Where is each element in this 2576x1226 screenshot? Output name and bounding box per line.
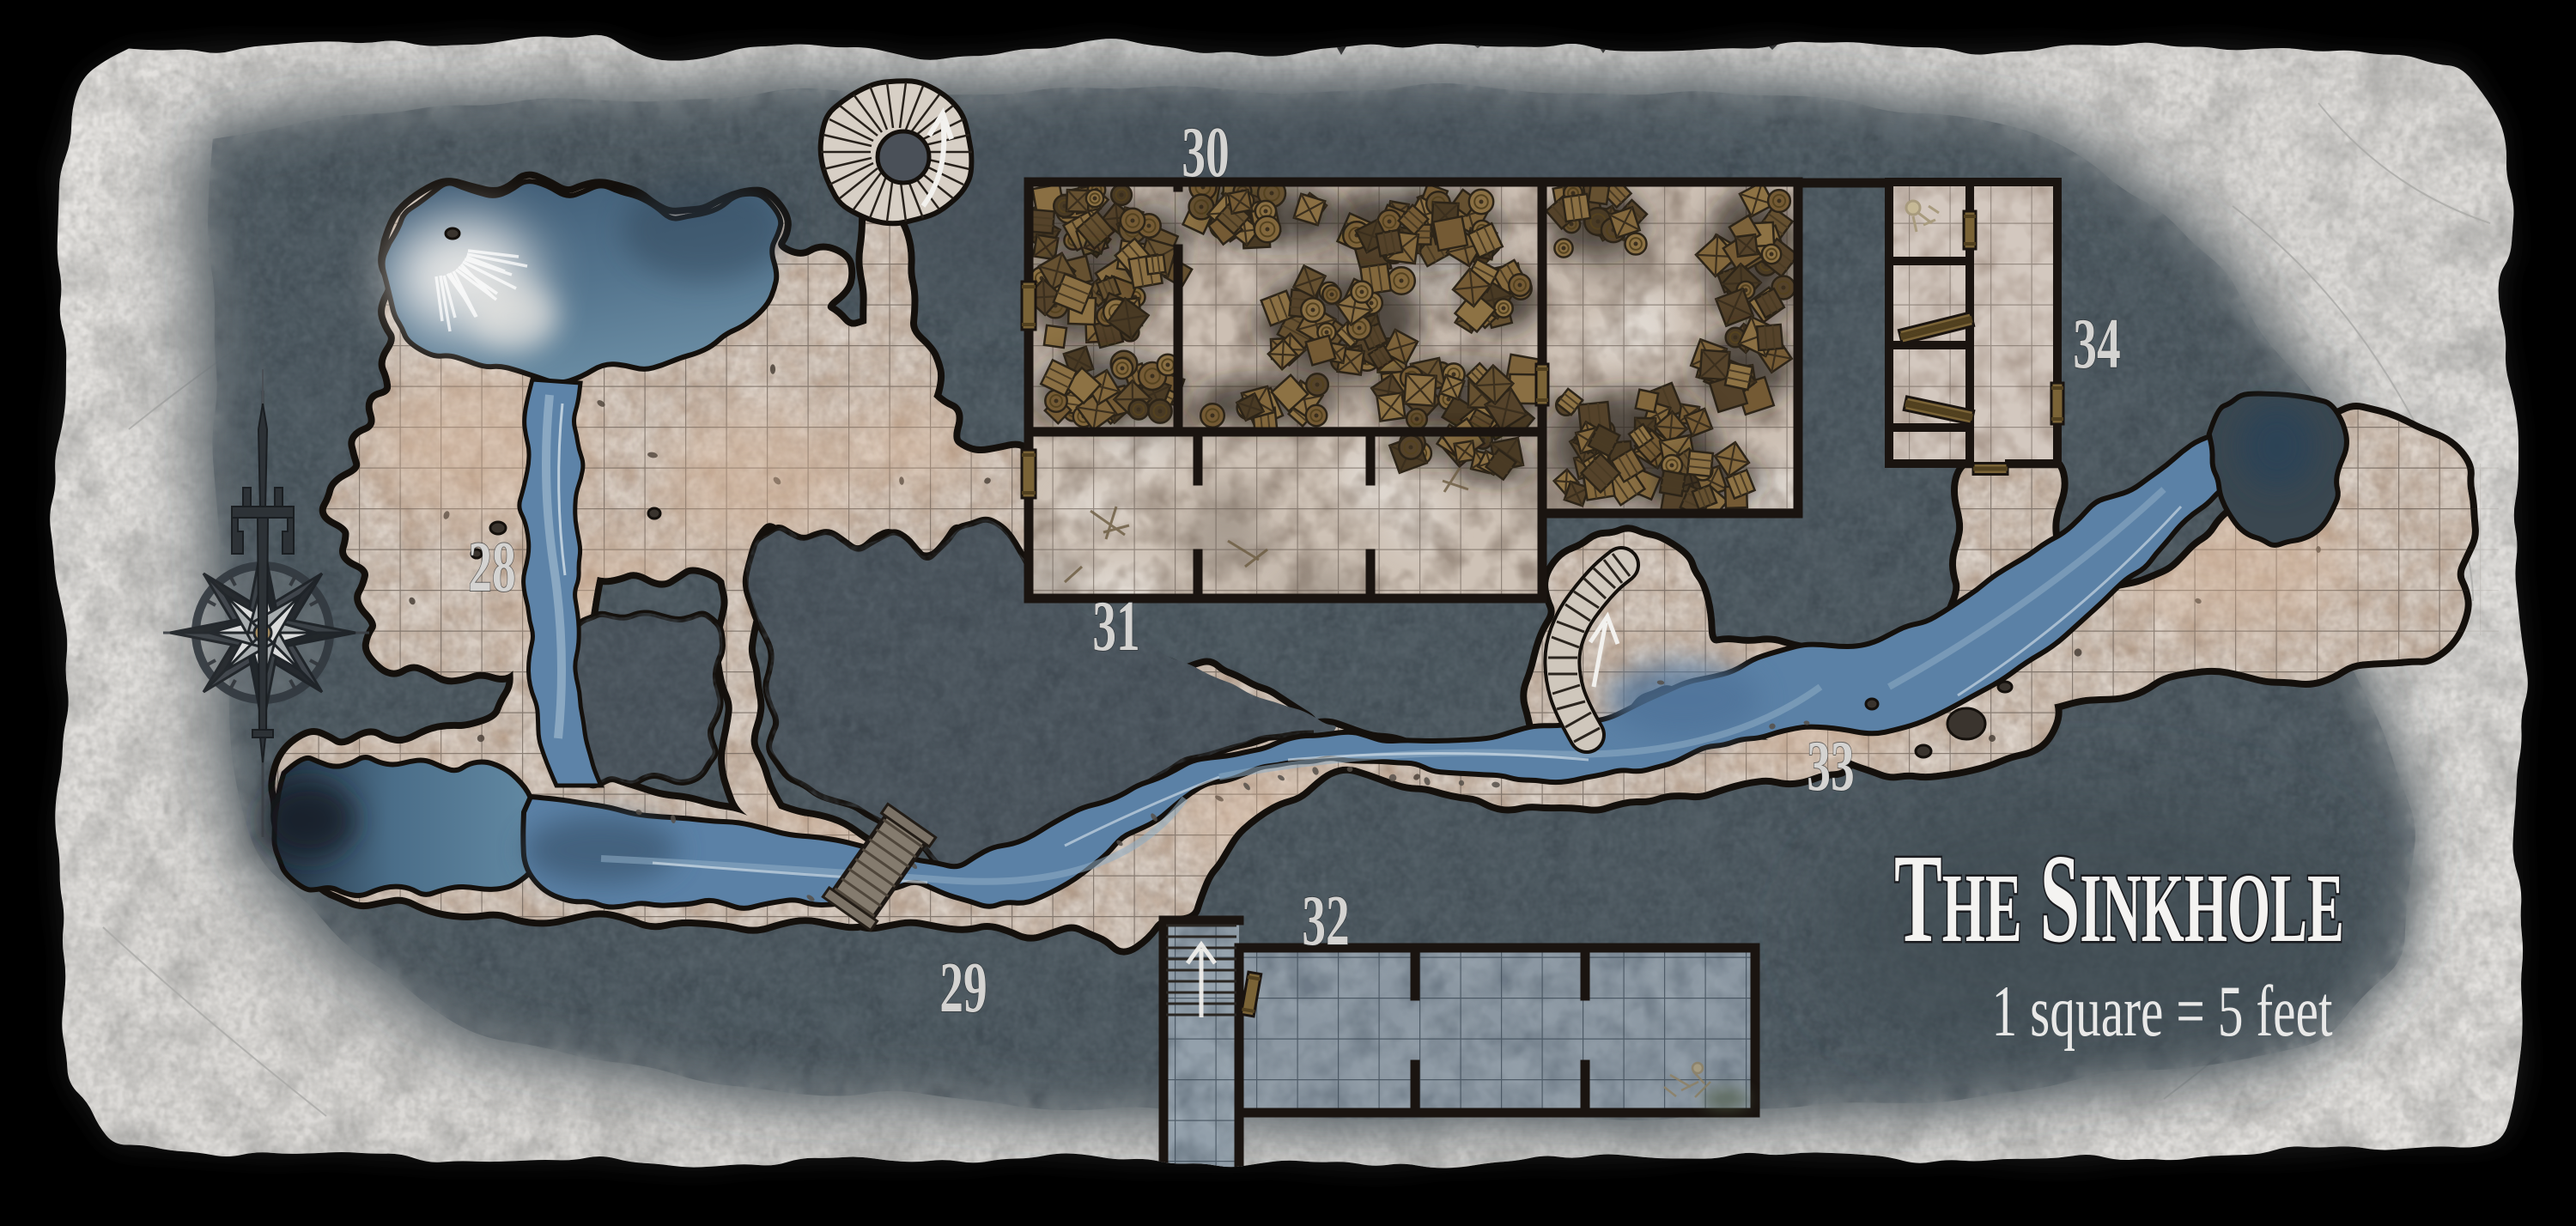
svg-text:28: 28 <box>468 528 515 607</box>
svg-text:33: 33 <box>1807 727 1854 806</box>
svg-text:29: 29 <box>939 949 987 1028</box>
svg-text:32: 32 <box>1302 882 1349 961</box>
svg-text:1 square = 5 feet: 1 square = 5 feet <box>1992 971 2333 1052</box>
svg-text:30: 30 <box>1182 113 1229 192</box>
svg-text:31: 31 <box>1092 587 1139 666</box>
svg-text:34: 34 <box>2073 305 2120 384</box>
